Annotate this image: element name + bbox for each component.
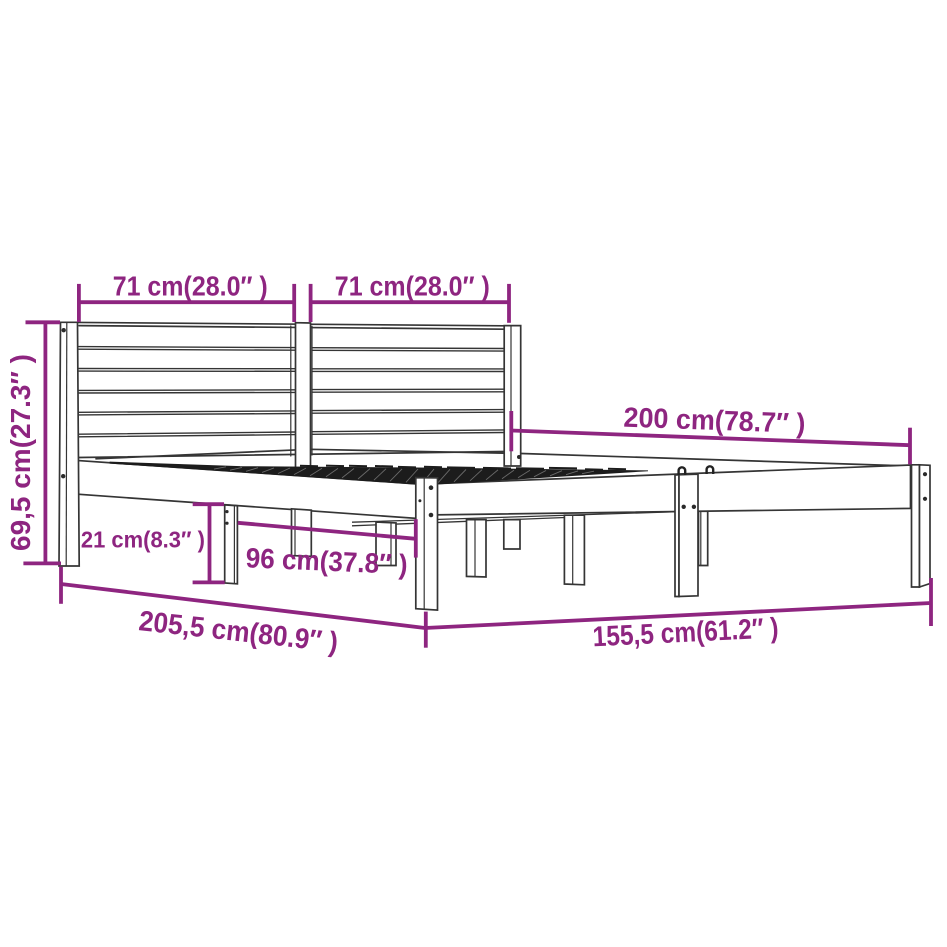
- svg-text:69,5 cm(27.3″ ): 69,5 cm(27.3″ ): [5, 354, 36, 551]
- svg-text:200 cm(78.7″ ): 200 cm(78.7″ ): [623, 402, 806, 439]
- svg-text:71 cm(28.0″ ): 71 cm(28.0″ ): [113, 271, 268, 302]
- svg-text:21 cm(8.3″ ): 21 cm(8.3″ ): [81, 527, 205, 553]
- svg-text:71 cm(28.0″ ): 71 cm(28.0″ ): [335, 271, 490, 302]
